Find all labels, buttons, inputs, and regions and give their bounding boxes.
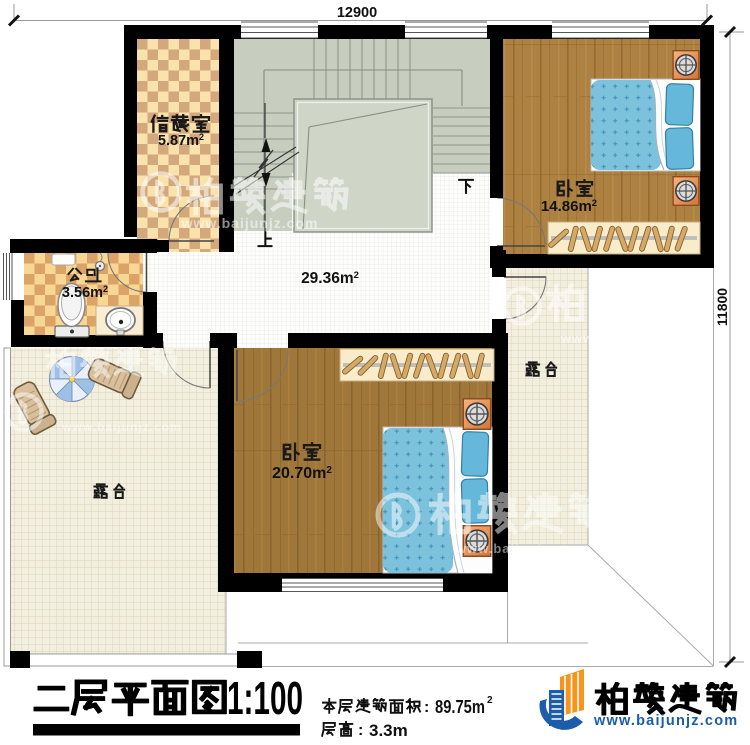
svg-text:www.baijunjz.com: www.baijunjz.com [560, 331, 689, 346]
svg-text:12900: 12900 [337, 5, 377, 21]
svg-text:5.87m2: 5.87m2 [158, 132, 204, 149]
svg-text:www.baijunjz.com: www.baijunjz.com [593, 713, 738, 729]
svg-text::: : [358, 722, 363, 739]
svg-text:3.3m: 3.3m [369, 721, 408, 740]
svg-text:29.36m2: 29.36m2 [301, 270, 359, 287]
svg-text:2: 2 [487, 695, 493, 706]
svg-text:14.86m2: 14.86m2 [541, 198, 597, 215]
svg-text:www.baijunjz.com: www.baijunjz.com [455, 541, 584, 556]
svg-text:11800: 11800 [714, 288, 730, 326]
svg-text:20.70m2: 20.70m2 [272, 465, 332, 482]
svg-text:1:100: 1:100 [227, 672, 303, 724]
svg-text:3.56m2: 3.56m2 [62, 284, 108, 301]
svg-text:www.baijunjz.com: www.baijunjz.com [181, 215, 319, 231]
svg-text:www.baijunjz.com: www.baijunjz.com [61, 420, 182, 434]
svg-text::: : [424, 699, 429, 716]
svg-text:89.75m: 89.75m [435, 697, 485, 717]
